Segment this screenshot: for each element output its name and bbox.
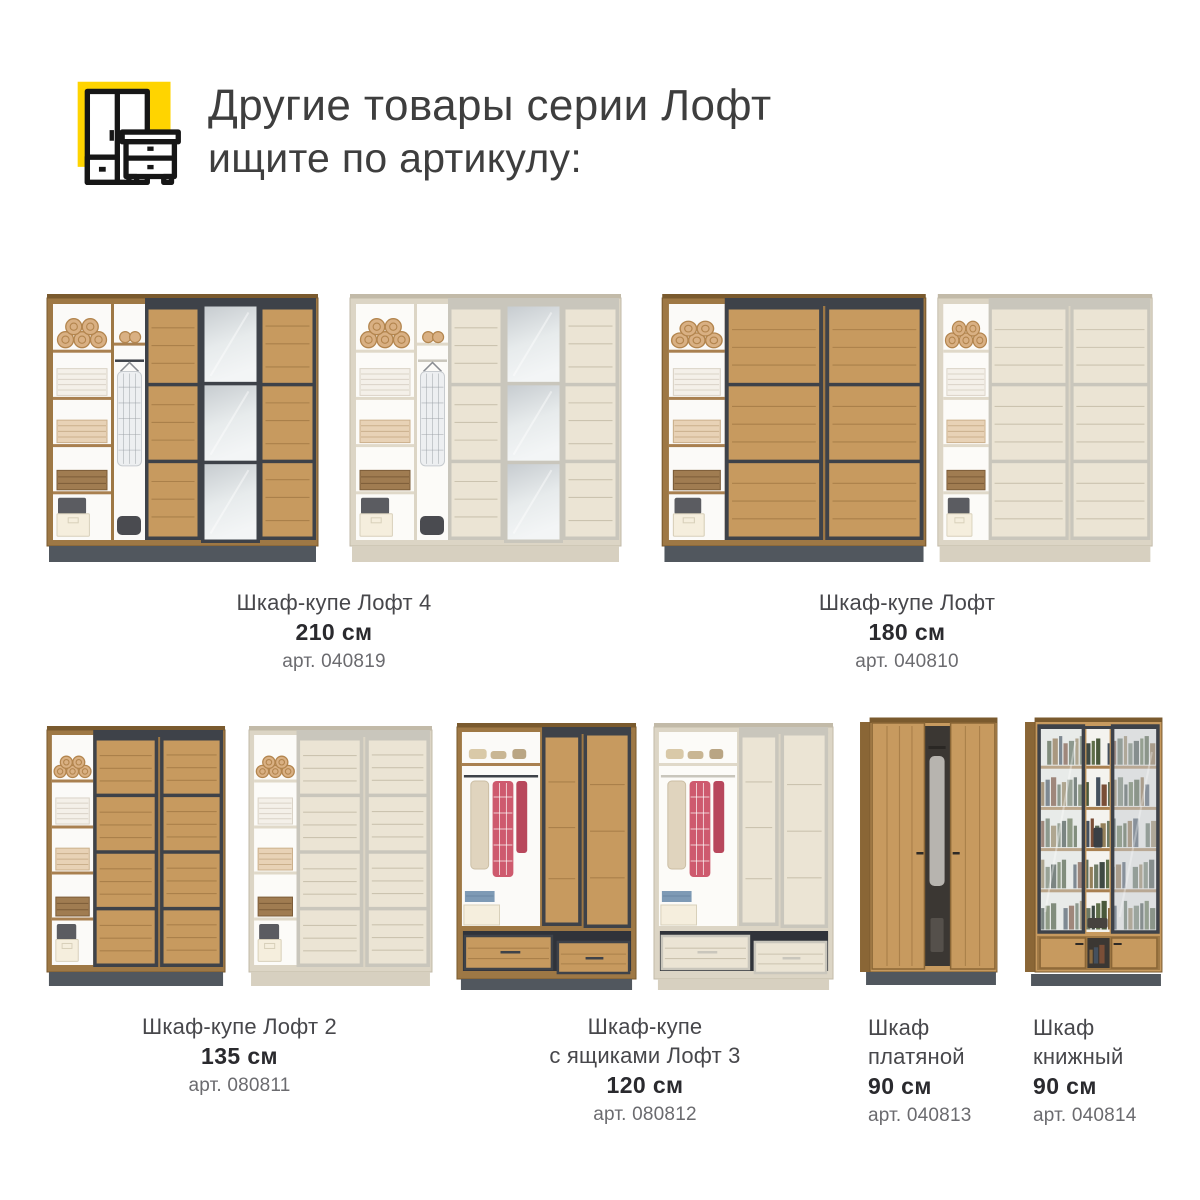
wardrobe-sliding-narrow-light-image	[247, 722, 434, 994]
product-card-loft3: Шкаф-купе с ящиками Лофт 3 120 см арт. 0…	[455, 719, 835, 1128]
product-article: арт. 040813	[868, 1102, 1008, 1129]
product-caption: Шкаф-купе Лофт 4 210 см арт. 040819	[45, 588, 623, 675]
wardrobe-sliding-2door-light-image	[936, 290, 1154, 570]
wardrobe-nightstand-icon	[68, 74, 186, 192]
product-name: Шкаф-купе Лофт 4	[45, 588, 623, 617]
product-images	[858, 712, 1008, 995]
product-caption: Шкаф платяной 90 см арт. 040813	[858, 1013, 1008, 1129]
product-images	[45, 722, 434, 994]
product-name: Шкаф-купе Лофт	[660, 588, 1154, 617]
product-size: 210 см	[45, 617, 623, 648]
product-card-platyanoy: Шкаф платяной 90 см арт. 040813	[858, 712, 1008, 1129]
product-images	[45, 290, 623, 570]
wardrobe-sliding-3door-mirror-light-image	[348, 290, 623, 570]
wardrobe-sliding-3door-mirror-oak-image	[45, 290, 320, 570]
product-size: 90 см	[868, 1071, 1008, 1102]
bookcase-glass-doors-oak-image	[1023, 712, 1169, 995]
product-size: 180 см	[660, 617, 1154, 648]
wardrobe-drawers-light-image	[652, 719, 835, 994]
product-size: 90 см	[1033, 1071, 1173, 1102]
page-title: Другие товары серии Лофт	[208, 78, 772, 133]
product-images	[1023, 712, 1173, 995]
header: Другие товары серии Лофт ищите по артику…	[68, 74, 772, 192]
product-card-loft2: Шкаф-купе Лофт 2 135 см арт. 080811	[45, 722, 434, 1099]
product-card-knizhny: Шкаф книжный 90 см арт. 040814	[1023, 712, 1173, 1129]
product-card-loft180: Шкаф-купе Лофт 180 см арт. 040810	[660, 290, 1154, 675]
product-name: Шкаф платяной	[868, 1013, 1008, 1071]
product-size: 135 см	[45, 1041, 434, 1072]
product-name: Шкаф-купе с ящиками Лофт 3	[455, 1012, 835, 1070]
product-article: арт. 040819	[45, 648, 623, 675]
product-caption: Шкаф-купе Лофт 2 135 см арт. 080811	[45, 1012, 434, 1099]
wardrobe-sliding-narrow-oak-image	[45, 722, 227, 994]
product-article: арт. 040814	[1033, 1102, 1173, 1129]
product-name: Шкаф книжный	[1033, 1013, 1173, 1071]
product-size: 120 см	[455, 1070, 835, 1101]
product-article: арт. 040810	[660, 648, 1154, 675]
product-images	[660, 290, 1154, 570]
header-titles: Другие товары серии Лофт ищите по артику…	[208, 74, 772, 183]
product-caption: Шкаф книжный 90 см арт. 040814	[1023, 1013, 1173, 1129]
product-caption: Шкаф-купе с ящиками Лофт 3 120 см арт. 0…	[455, 1012, 835, 1128]
product-article: арт. 080811	[45, 1072, 434, 1099]
catalog-page: Другие товары серии Лофт ищите по артику…	[0, 0, 1200, 1200]
product-card-loft4: Шкаф-купе Лофт 4 210 см арт. 040819	[45, 290, 623, 675]
product-images	[455, 719, 835, 994]
product-caption: Шкаф-купе Лофт 180 см арт. 040810	[660, 588, 1154, 675]
wardrobe-sliding-2door-oak-image	[660, 290, 928, 570]
wardrobe-hinged-2door-oak-image	[858, 712, 1004, 995]
wardrobe-drawers-oak-image	[455, 719, 638, 994]
product-article: арт. 080812	[455, 1101, 835, 1128]
page-subtitle: ищите по артикулу:	[208, 133, 772, 183]
product-name: Шкаф-купе Лофт 2	[45, 1012, 434, 1041]
